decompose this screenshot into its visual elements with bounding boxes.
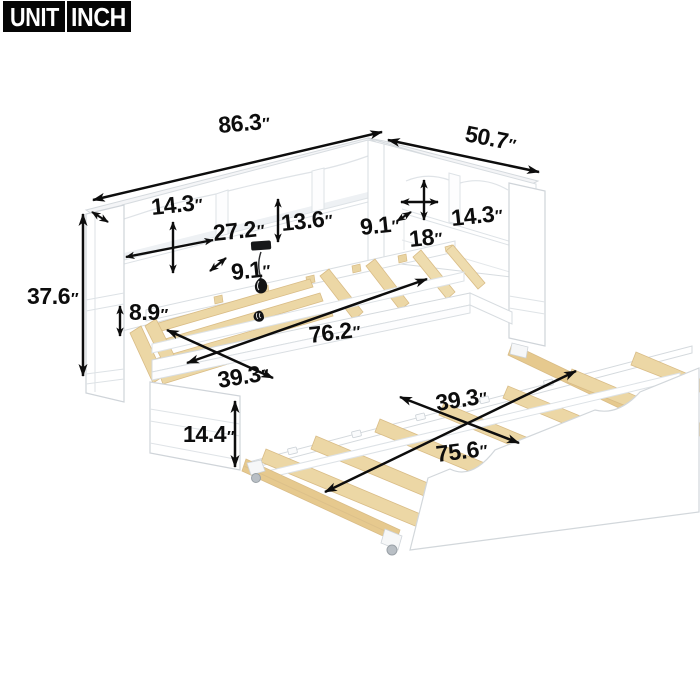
svg-text:UNIT: UNIT [10,2,59,32]
svg-text:INCH: INCH [71,2,126,32]
